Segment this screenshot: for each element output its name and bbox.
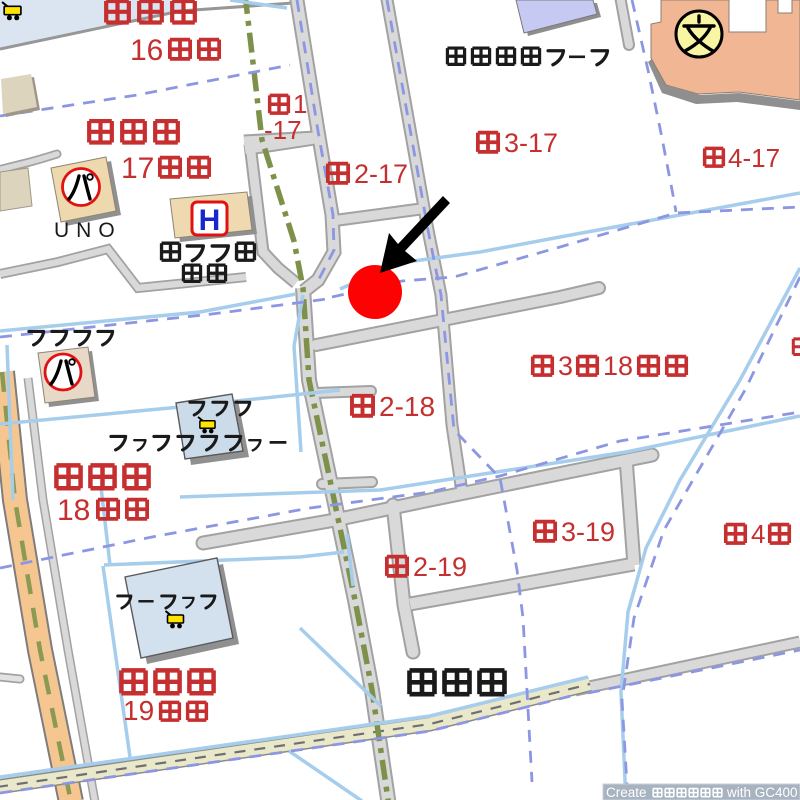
svg-text:UNO: UNO <box>54 219 122 242</box>
svg-text:3-17: 3-17 <box>504 128 558 158</box>
svg-text:18: 18 <box>57 494 90 527</box>
svg-text:2-19: 2-19 <box>413 552 467 582</box>
svg-text:16: 16 <box>130 34 163 67</box>
svg-text:H: H <box>199 204 221 237</box>
svg-text:4-17: 4-17 <box>728 143 780 173</box>
svg-text:3-19: 3-19 <box>561 517 615 547</box>
svg-text:2-18: 2-18 <box>379 391 435 422</box>
svg-text:19: 19 <box>123 695 154 726</box>
svg-text:17: 17 <box>121 152 154 185</box>
svg-text:-17: -17 <box>264 115 302 145</box>
svg-text:18: 18 <box>603 351 633 381</box>
svg-text:Create: Create <box>606 785 647 800</box>
svg-text:4: 4 <box>751 519 765 549</box>
svg-text:with GC400: with GC400 <box>726 785 798 800</box>
svg-text:3: 3 <box>558 351 573 381</box>
svg-text:2-17: 2-17 <box>354 159 408 189</box>
